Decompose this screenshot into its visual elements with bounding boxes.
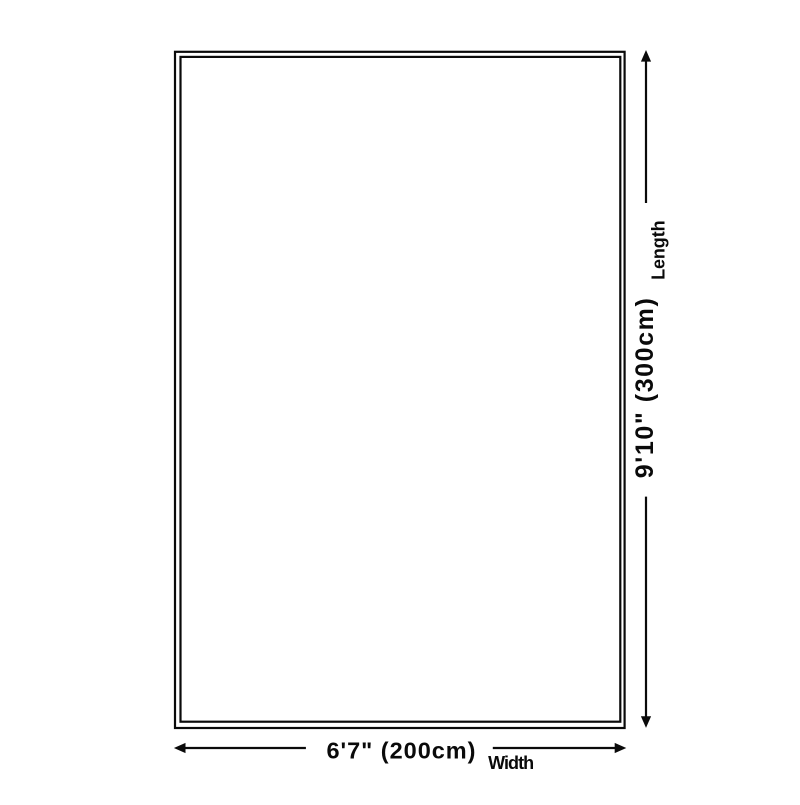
svg-text:Width: Width [488,753,534,773]
svg-text:Length: Length [648,220,668,280]
svg-text:9'10" (300cm): 9'10" (300cm) [631,298,659,478]
svg-text:6'7" (200cm): 6'7" (200cm) [327,737,476,763]
